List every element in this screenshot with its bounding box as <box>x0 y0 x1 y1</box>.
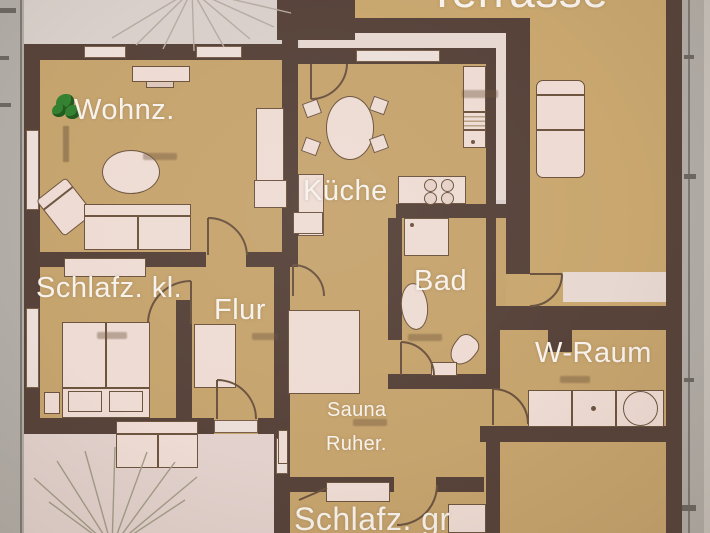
room-label-sauna-line1: Sauna <box>327 400 386 420</box>
floor-plan: Terrasse Wohnz. Küche Bad Schlafz. kl. F… <box>0 0 710 533</box>
room-label-terrasse: Terrasse <box>428 0 608 14</box>
room-label-sauna-line2: Ruher. <box>326 434 387 454</box>
room-label-kueche: Küche <box>303 177 388 206</box>
area-dimension-smudge <box>408 334 442 341</box>
area-dimension-smudge <box>462 90 498 98</box>
area-dimension-smudge <box>97 332 127 339</box>
tree-icon <box>34 447 197 533</box>
door-arc <box>148 64 562 525</box>
room-label-wraum: W-Raum <box>535 339 652 368</box>
room-label-schlafzimmer-gross: Schlafz. gr <box>294 503 451 533</box>
area-dimension-smudge <box>560 376 590 383</box>
room-label-schlafzimmer-klein: Schlafz. kl. <box>36 274 182 303</box>
area-dimension-smudge <box>252 333 278 340</box>
room-label-bad: Bad <box>414 267 467 296</box>
room-label-wohnzimmer: Wohnz. <box>74 96 175 125</box>
room-label-flur: Flur <box>214 296 266 325</box>
area-dimension-smudge <box>143 153 177 160</box>
tree-icon <box>112 0 291 51</box>
